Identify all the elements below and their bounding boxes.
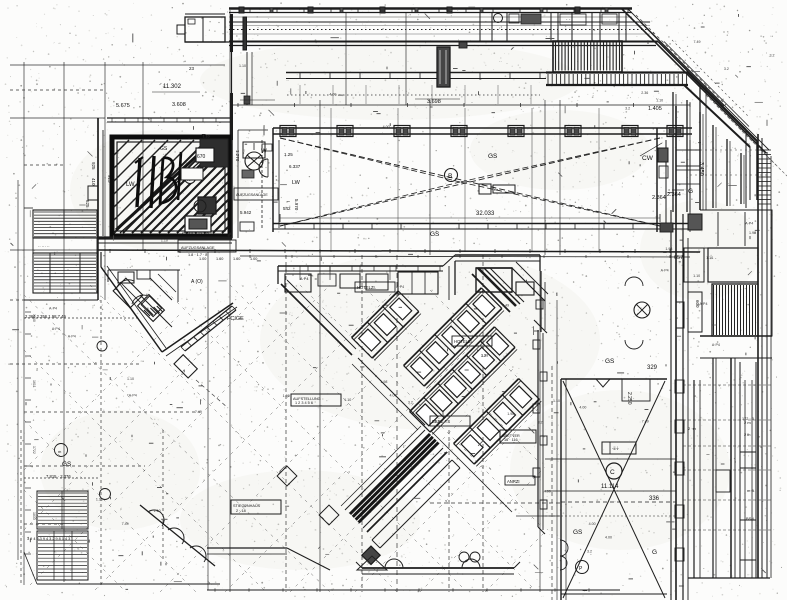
svg-text:2.250: 2.250: [626, 392, 632, 405]
svg-text:BSd: BSd: [746, 516, 754, 521]
svg-text:SW L.I.P. 31: SW L.I.P. 31: [182, 232, 210, 238]
svg-text:410: 410: [91, 178, 96, 186]
svg-text:GS: GS: [160, 146, 168, 152]
svg-text:A·P4: A·P4: [745, 222, 753, 226]
svg-text:5.942: 5.942: [240, 210, 252, 215]
svg-text:A·P4: A·P4: [699, 302, 707, 306]
svg-text:1.10: 1.10: [656, 99, 663, 103]
svg-text:3.2: 3.2: [538, 421, 543, 425]
svg-text:3.698: 3.698: [427, 99, 441, 105]
svg-text:··: ··: [499, 60, 501, 64]
svg-text:·· ··· ··: ·· ··· ··: [38, 244, 50, 249]
svg-text:7.49: 7.49: [642, 420, 649, 424]
svg-text:3.2: 3.2: [481, 354, 486, 358]
svg-text:BERE·TS: BERE·TS: [432, 419, 450, 424]
svg-text:LW: LW: [292, 180, 301, 186]
svg-text:3.2: 3.2: [587, 550, 592, 554]
svg-text:m·A: m·A: [747, 488, 755, 493]
svg-text:1.10: 1.10: [96, 497, 103, 501]
svg-text:STIEGENHAUS: STIEGENHAUS: [233, 504, 261, 508]
svg-text:1.98: 1.98: [380, 380, 387, 384]
svg-text:GS: GS: [488, 153, 498, 160]
svg-text:··: ··: [668, 536, 670, 540]
svg-text:A (O): A (O): [191, 279, 203, 285]
svg-text:1.10: 1.10: [239, 64, 246, 68]
svg-text:CW: CW: [642, 155, 654, 162]
svg-text:FCIGE: FCIGE: [227, 316, 244, 322]
svg-text:3.2: 3.2: [625, 107, 630, 111]
svg-text:1.98: 1.98: [749, 231, 756, 235]
svg-text:2.364 2.356 1.98 7.49: 2.364 2.356 1.98 7.49: [25, 314, 66, 319]
svg-text:··: ··: [219, 121, 221, 125]
svg-text:··: ··: [188, 136, 190, 140]
svg-text:1.98: 1.98: [507, 412, 514, 416]
svg-text:1.270: 1.270: [235, 150, 240, 162]
svg-text:7.49: 7.49: [122, 522, 129, 526]
svg-text:3.608: 3.608: [172, 102, 186, 108]
svg-text:▪▪▪: ▪▪▪: [494, 187, 499, 192]
svg-text:··: ··: [61, 350, 63, 354]
svg-text:336: 336: [649, 496, 660, 502]
svg-text:A·P4: A·P4: [396, 285, 404, 289]
svg-text:A·P4: A·P4: [52, 327, 60, 331]
svg-text:G: G: [652, 549, 657, 556]
svg-text:HOTELZI.: HOTELZI.: [357, 285, 376, 290]
svg-text:··: ··: [597, 457, 599, 461]
svg-text:C: C: [610, 469, 615, 476]
svg-text:925: 925: [91, 162, 96, 170]
svg-text:7.49: 7.49: [694, 40, 701, 44]
svg-text:3.2: 3.2: [769, 53, 774, 57]
svg-text:329: 329: [647, 365, 658, 371]
svg-text:1.60: 1.60: [216, 257, 223, 261]
svg-text:1.98: 1.98: [665, 247, 672, 251]
svg-text:ANRZI: ANRZI: [507, 479, 520, 484]
svg-text:1722: 1722: [32, 446, 36, 454]
svg-text:··: ··: [286, 78, 288, 82]
svg-text:7.815 · 2.376: 7.815 · 2.376: [46, 474, 71, 479]
svg-text:1.98: 1.98: [283, 394, 290, 398]
svg-text:1.10: 1.10: [154, 509, 161, 513]
svg-text:4.00: 4.00: [389, 394, 396, 398]
svg-text:4.00: 4.00: [329, 93, 336, 97]
svg-text:A·P4: A·P4: [49, 306, 57, 310]
svg-text:542: 542: [283, 206, 291, 211]
svg-text:4.00: 4.00: [589, 522, 596, 526]
svg-text:4.00: 4.00: [544, 489, 551, 493]
svg-text:915: 915: [107, 175, 112, 183]
svg-text:1.00: 1.00: [199, 257, 206, 261]
svg-text:GS: GS: [62, 461, 72, 468]
svg-text:670: 670: [197, 154, 206, 160]
svg-text:1833: 1833: [32, 512, 36, 520]
svg-text:1.10: 1.10: [203, 134, 210, 138]
svg-text:G: G: [688, 188, 693, 195]
svg-text:1.10: 1.10: [161, 239, 168, 243]
svg-text:AUFZUGSANLAGE: AUFZUGSANLAGE: [236, 193, 268, 197]
svg-text:6.337: 6.337: [289, 164, 301, 169]
svg-text:1611: 1611: [32, 380, 36, 388]
svg-text:··: ··: [274, 182, 276, 186]
svg-text:1 2 3 4 5 6: 1 2 3 4 5 6: [295, 401, 313, 405]
svg-text:··: ··: [296, 256, 298, 260]
svg-text:··: ··: [184, 574, 186, 578]
svg-text:B: B: [448, 173, 452, 180]
svg-text:5.675: 5.675: [116, 103, 130, 109]
svg-text:1.25: 1.25: [284, 152, 293, 157]
svg-text:2 · 18: 2 · 18: [236, 509, 246, 513]
svg-text:16 · 116: 16 · 116: [504, 438, 518, 442]
svg-text:1.10: 1.10: [127, 377, 134, 381]
svg-text:GS: GS: [573, 529, 583, 536]
svg-text:1.10: 1.10: [553, 399, 560, 403]
svg-text:3.450: 3.450: [698, 162, 704, 176]
svg-text:1.405: 1.405: [648, 106, 662, 112]
svg-text:1500: 1500: [32, 314, 36, 322]
svg-text:GS: GS: [430, 231, 440, 238]
svg-text:··: ··: [471, 101, 473, 105]
svg-text:4.00: 4.00: [383, 125, 390, 129]
svg-text:7.49: 7.49: [195, 410, 202, 414]
svg-text:A·P4: A·P4: [68, 335, 76, 339]
svg-text:· ·: · ·: [566, 17, 571, 23]
svg-text:··: ··: [162, 527, 164, 531]
svg-text:A·P4: A·P4: [712, 343, 720, 347]
svg-text:AUFZUGSANLAGE: AUFZUGSANLAGE: [181, 246, 215, 250]
svg-text:1.60: 1.60: [233, 257, 240, 261]
svg-text:23: 23: [189, 66, 195, 71]
svg-text:2 ·m: 2 ·m: [688, 426, 697, 431]
svg-text:1.10: 1.10: [344, 398, 351, 402]
svg-text:7.49: 7.49: [502, 304, 509, 308]
svg-text:2 lh: 2 lh: [744, 432, 750, 437]
svg-text:11.114: 11.114: [601, 484, 619, 490]
svg-text:A·P4: A·P4: [300, 277, 308, 281]
svg-text:LW: LW: [126, 182, 135, 188]
svg-text:5.970: 5.970: [294, 199, 299, 211]
svg-text:GS: GS: [605, 358, 615, 365]
svg-text:2 m: 2 m: [744, 420, 751, 425]
svg-text:4.00: 4.00: [605, 535, 612, 539]
svg-text:11.302: 11.302: [163, 84, 182, 90]
svg-text:657: 657: [674, 255, 683, 261]
svg-text:3.2: 3.2: [724, 67, 729, 71]
svg-text:A·P4: A·P4: [129, 394, 137, 398]
svg-text:32.033: 32.033: [476, 211, 495, 217]
svg-text:1.10: 1.10: [693, 274, 700, 278]
svg-text:··: ··: [622, 584, 624, 588]
svg-text:3.2: 3.2: [408, 400, 413, 404]
svg-text:··: ··: [565, 503, 567, 507]
svg-text:A·P4: A·P4: [661, 268, 669, 272]
svg-text:2.364: 2.364: [652, 195, 666, 201]
svg-text:HOTELZI.: HOTELZI.: [454, 339, 473, 344]
svg-text:2.36: 2.36: [641, 91, 648, 95]
svg-text:4.00: 4.00: [579, 405, 586, 409]
svg-text:1.10: 1.10: [706, 256, 713, 260]
svg-text:·ii·i·: ·ii·i·: [612, 446, 620, 451]
svg-text:1.00: 1.00: [250, 257, 257, 261]
svg-text:625: 625: [85, 200, 90, 208]
